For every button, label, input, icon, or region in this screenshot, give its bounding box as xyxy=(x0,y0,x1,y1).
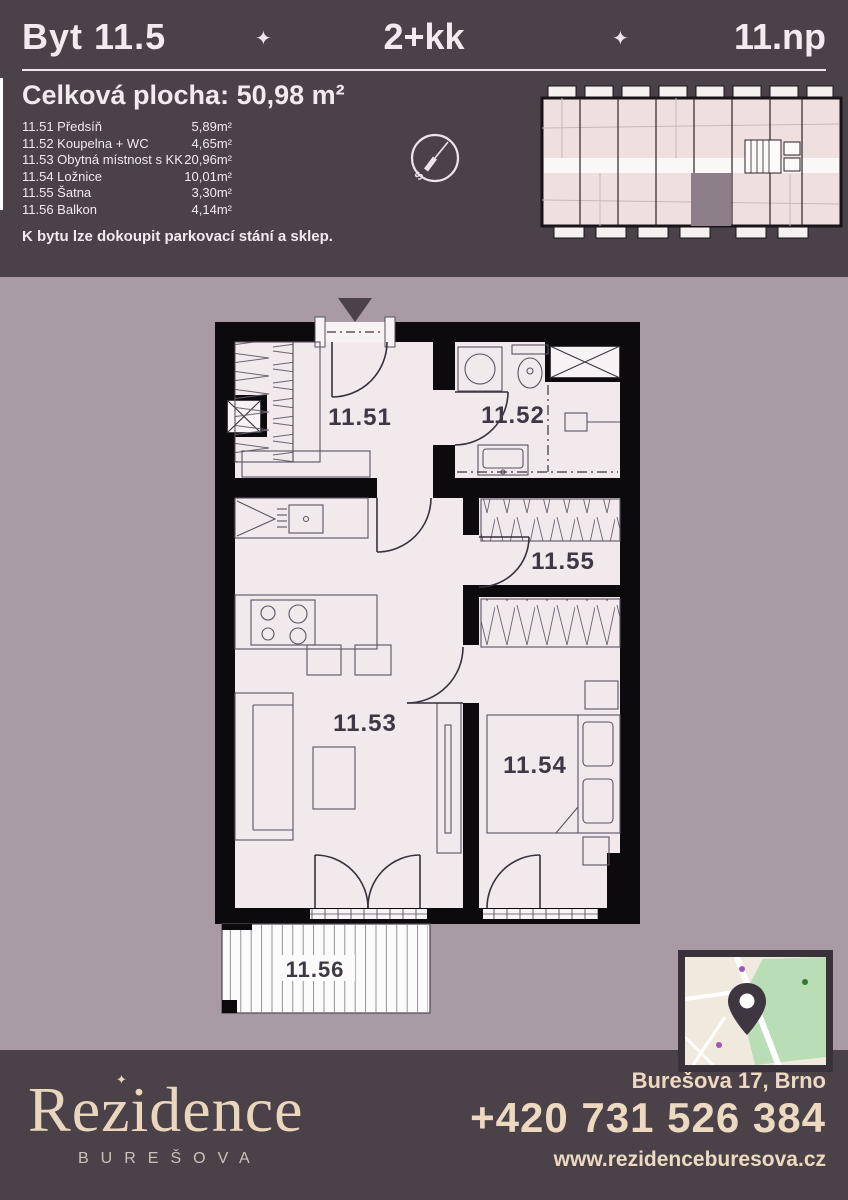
room-name: 11.56 Balkon xyxy=(22,202,97,219)
unit-title: Byt 11.5 xyxy=(22,16,166,58)
layout-title: 2+kk xyxy=(383,16,464,58)
room-row: 11.55 Šatna 3,30m² xyxy=(22,185,232,202)
room-row: 11.56 Balkon 4,14m² xyxy=(22,202,232,219)
accent-line xyxy=(0,78,3,210)
room-label-11-51: 11.51 xyxy=(328,404,392,431)
location-map xyxy=(678,950,833,1072)
purchase-note: K bytu lze dokoupit parkovací stání a sk… xyxy=(22,228,333,245)
room-label-11-54: 11.54 xyxy=(503,752,567,779)
phone-number: +420 731 526 384 xyxy=(470,1094,826,1142)
room-name: 11.55 Šatna xyxy=(22,185,91,202)
room-row: 11.51 Předsíň 5,89m² xyxy=(22,119,232,136)
room-label-11-56: 11.56 xyxy=(286,957,345,982)
header-divider xyxy=(22,69,826,71)
room-name: 11.52 Koupelna + WC xyxy=(22,136,149,153)
room-row: 11.54 Ložnice 10,01m² xyxy=(22,169,232,186)
total-area-title: Celková plocha: 50,98 m² xyxy=(22,80,345,111)
brand-subtitle: BUREŠOVA xyxy=(78,1150,262,1168)
room-label-11-52: 11.52 xyxy=(481,402,545,429)
brand-diamond-icon: ✦ xyxy=(116,1072,127,1088)
brand-logo: Rezidence xyxy=(28,1078,304,1142)
room-row: 11.52 Koupelna + WC 4,65m² xyxy=(22,136,232,153)
compass-south-label: S xyxy=(413,169,427,183)
flyer-page: Byt 11.5 ✦ 2+kk ✦ 11.np Celková plocha: … xyxy=(0,0,848,1200)
room-area: 10,01m² xyxy=(184,169,232,186)
highlighted-unit xyxy=(691,173,731,226)
room-name: 11.54 Ložnice xyxy=(22,169,102,186)
map-graphic xyxy=(685,957,826,1065)
diamond-separator-icon: ✦ xyxy=(255,26,272,51)
room-name: 11.51 Předsíň xyxy=(22,119,102,136)
compass-icon: S xyxy=(405,128,465,188)
room-area: 20,96m² xyxy=(184,152,232,169)
room-label-11-55: 11.55 xyxy=(531,548,595,575)
entrance-arrow-icon xyxy=(338,298,372,322)
room-name: 11.53 Obytná místnost s KK xyxy=(22,152,183,169)
building-overview xyxy=(540,84,843,240)
room-list: 11.51 Předsíň 5,89m² 11.52 Koupelna + WC… xyxy=(22,119,232,218)
room-area: 5,89m² xyxy=(192,119,232,136)
website-url: www.rezidenceburesova.cz xyxy=(554,1148,826,1172)
room-label-11-53: 11.53 xyxy=(333,710,397,737)
room-area: 4,14m² xyxy=(192,202,232,219)
diamond-separator-icon: ✦ xyxy=(612,26,629,51)
floor-title: 11.np xyxy=(734,16,826,58)
room-row: 11.53 Obytná místnost s KK 20,96m² xyxy=(22,152,232,169)
room-area: 4,65m² xyxy=(192,136,232,153)
room-area: 3,30m² xyxy=(192,185,232,202)
floor-plan: 11.51 11.52 11.53 11.54 11.55 11.56 xyxy=(215,295,640,1020)
info-panel: Byt 11.5 ✦ 2+kk ✦ 11.np Celková plocha: … xyxy=(0,0,848,277)
